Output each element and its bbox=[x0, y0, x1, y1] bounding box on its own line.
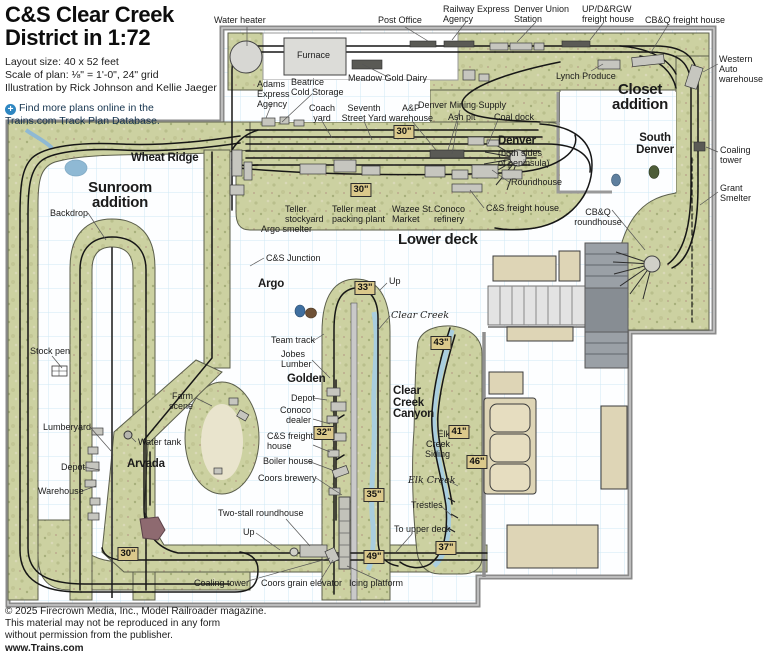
page-title-line1: C&S Clear Creek bbox=[5, 4, 220, 27]
plan-scale: Scale of plan: ⅛" = 1'-0", 24" grid bbox=[5, 69, 220, 82]
illustration-credit: Illustration by Rick Johnson and Kellie … bbox=[5, 82, 220, 95]
two-stall-roundhouse-structure bbox=[300, 545, 327, 557]
trains-note: +Find more plans online in the Trains.co… bbox=[5, 102, 220, 128]
track-plan-page: C&S Clear Creek District in 1:72 Layout … bbox=[0, 0, 768, 654]
furnace-structure bbox=[284, 38, 346, 75]
plan-meta: Layout size: 40 x 52 feet Scale of plan:… bbox=[5, 56, 220, 95]
trains-url: www.Trains.com bbox=[5, 643, 266, 654]
page-title-line2: District in 1:72 bbox=[5, 27, 220, 50]
copyright-line2: This material may not be reproduced in a… bbox=[5, 618, 266, 630]
pond bbox=[65, 160, 87, 176]
copyright-line1: © 2025 Firecrown Media, Inc., Model Rail… bbox=[5, 606, 266, 618]
copyright-line3: without permission from the publisher. bbox=[5, 630, 266, 642]
layout-size: Layout size: 40 x 52 feet bbox=[5, 56, 220, 69]
trains-note-text: Find more plans online in the Trains.com… bbox=[5, 102, 160, 127]
title-block: C&S Clear Creek District in 1:72 Layout … bbox=[5, 4, 220, 128]
water-heater-structure bbox=[230, 41, 262, 73]
copyright-block: © 2025 Firecrown Media, Inc., Model Rail… bbox=[5, 606, 266, 654]
plus-circle-icon: + bbox=[5, 104, 16, 115]
golden-backdrop bbox=[351, 303, 357, 600]
water-tank-structure bbox=[124, 431, 132, 439]
